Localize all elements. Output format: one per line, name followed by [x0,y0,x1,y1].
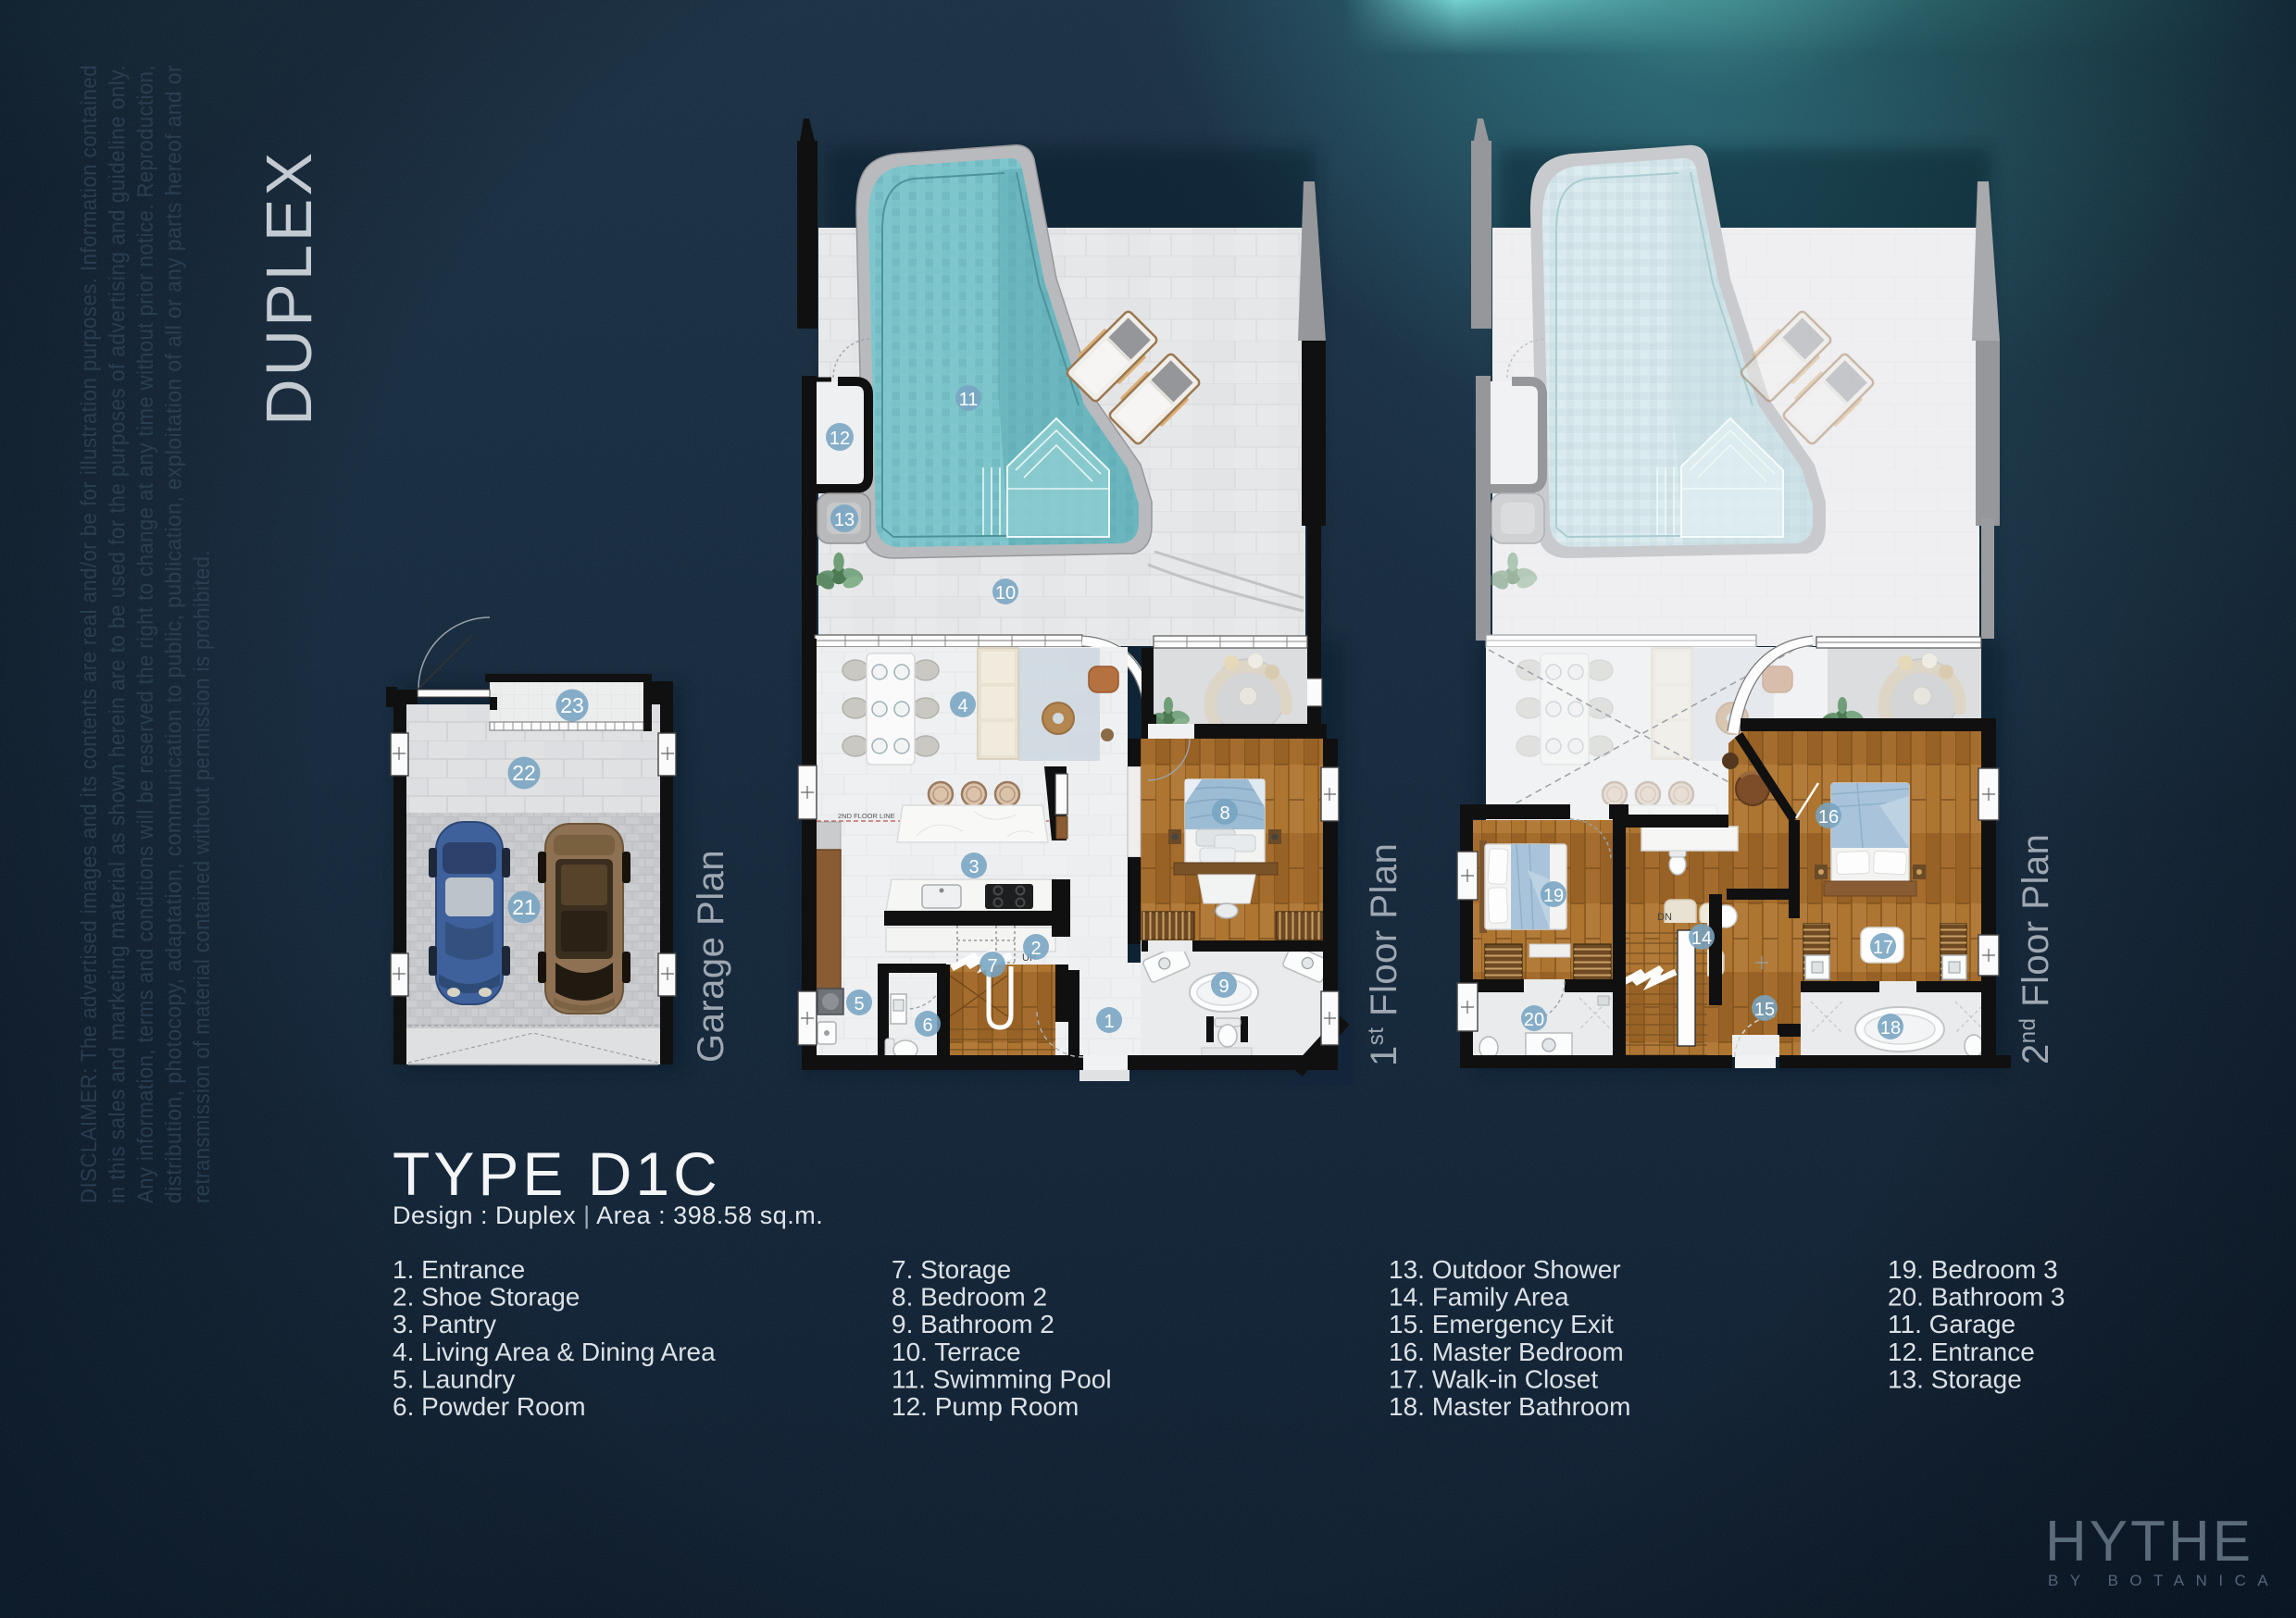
svg-text:2ND FLOOR LINE: 2ND FLOOR LINE [838,812,895,820]
svg-text:3: 3 [968,857,979,877]
svg-text:11: 11 [959,390,979,410]
svg-text:4: 4 [957,696,967,716]
svg-text:17: 17 [1873,938,1893,958]
svg-text:BY BOTANICA: BY BOTANICA [2048,1572,2279,1589]
svg-text:6: 6 [922,1015,932,1036]
svg-text:DUPLEX: DUPLEX [253,150,325,426]
svg-text:20: 20 [1524,1010,1544,1030]
svg-text:5: 5 [854,994,864,1014]
svg-text:12: 12 [830,429,850,449]
svg-text:Design : Duplex | Area : 398.5: Design : Duplex | Area : 398.58 sq.m. [393,1201,823,1229]
svg-text:23: 23 [560,693,584,717]
svg-text:21: 21 [512,895,536,919]
svg-text:13: 13 [834,510,855,530]
svg-text:9: 9 [1218,977,1229,997]
svg-text:16: 16 [1818,807,1839,828]
svg-text:2: 2 [1030,939,1041,959]
svg-text:7: 7 [987,956,997,977]
svg-text:8: 8 [1219,803,1229,824]
svg-text:19: 19 [1543,886,1564,906]
svg-text:18: 18 [1880,1018,1901,1039]
svg-text:13. Outdoor Shower 14. Family: 13. Outdoor Shower 14. Family Area 15. E… [1389,1255,1630,1421]
svg-text:Garage Plan: Garage Plan [691,850,731,1063]
svg-text:DN: DN [1657,912,1672,923]
svg-text:22: 22 [512,761,536,785]
svg-text:1: 1 [1104,1012,1114,1032]
svg-text:15: 15 [1754,1000,1775,1020]
svg-text:HYTHE: HYTHE [2045,1510,2253,1574]
svg-text:14: 14 [1691,928,1712,949]
svg-text:TYPE D1C: TYPE D1C [393,1139,721,1208]
svg-text:10: 10 [995,583,1016,604]
